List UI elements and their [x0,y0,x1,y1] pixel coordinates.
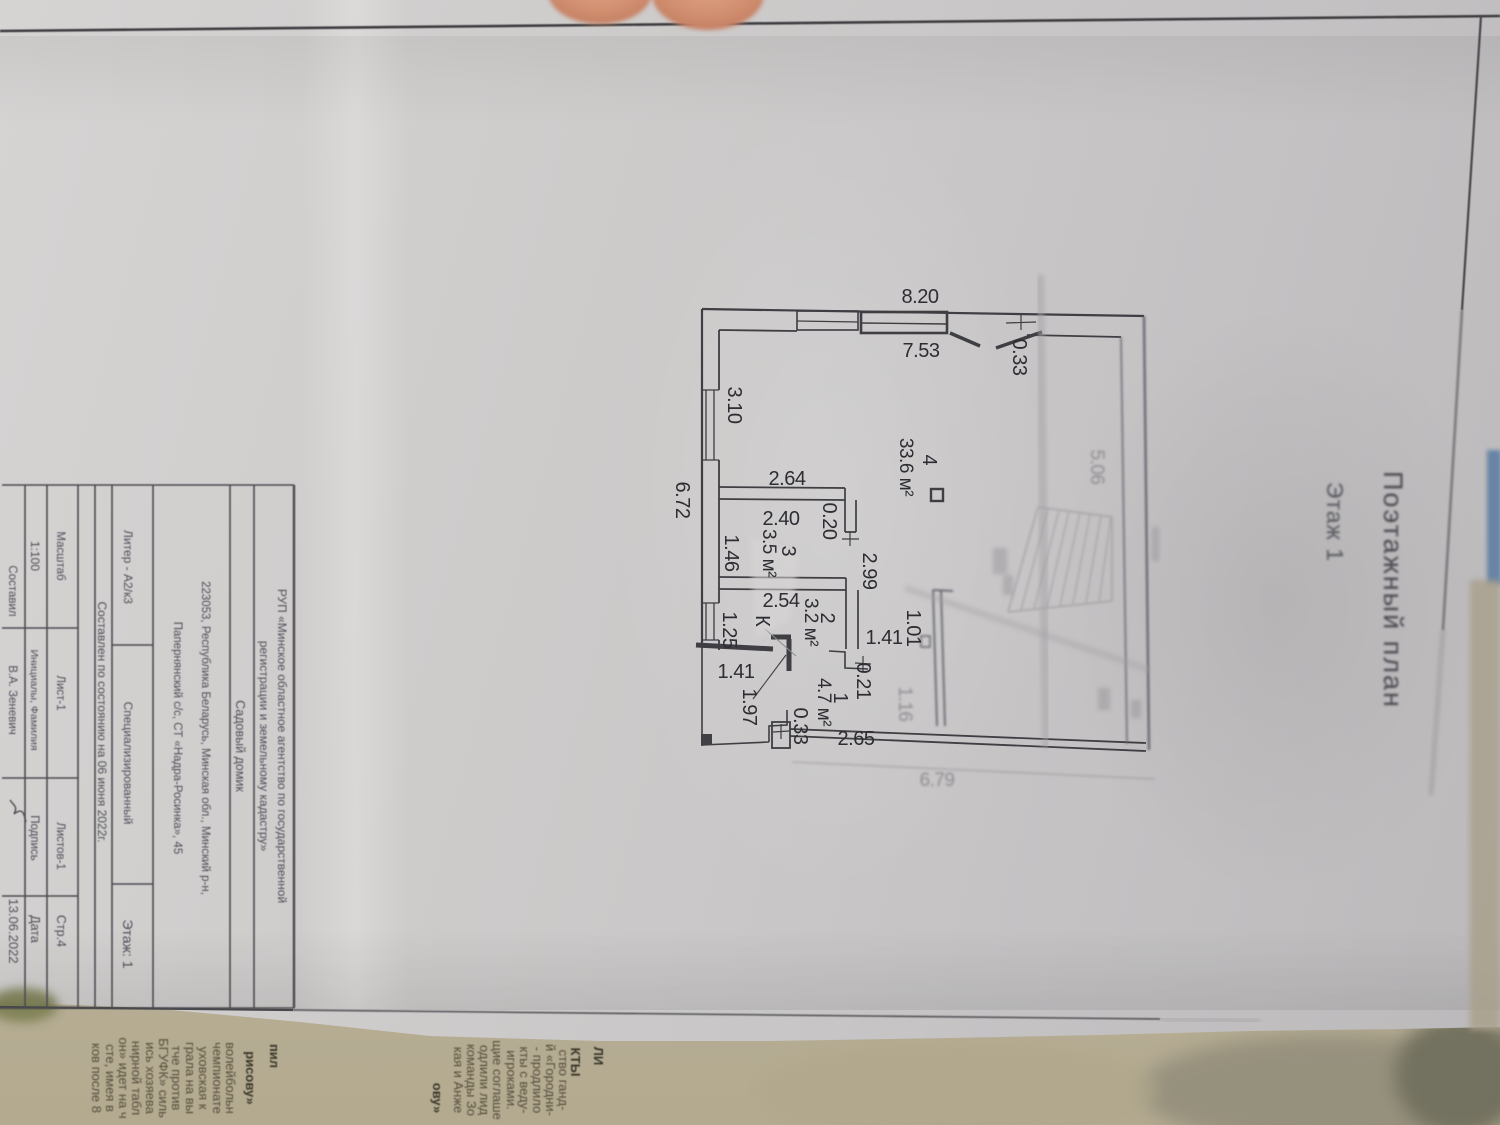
document-drawing-layer: 8.20 7.53 2.64 2.40 2.54 1.41 1.41 2.65 … [0,0,1500,1125]
blue-object-edge [1487,450,1500,585]
background-objects [1470,450,1500,1030]
title-block-text: РУП «Минское областное агентство по госу… [6,530,289,969]
dim-label: 3.10 [723,387,745,424]
dim-label: 1.41 [866,627,903,649]
fingertip-left [548,0,652,24]
signature-header: Подпись [28,815,40,861]
floorplan-right-blurred [921,316,1149,750]
dim-label: 0.20 [818,503,840,540]
dim-label: 1.01 [902,610,924,647]
as-of-date-row: Составлен по состоянию на 06 июня 2022г. [95,601,109,842]
chimney-wall [933,590,953,726]
dim-label-faint: 6.79 [920,770,955,791]
porch-post [701,734,712,745]
address-line2: Папернянский с/с, СТ «Надра-Росинка», 45 [171,622,183,854]
floor-cell: Этаж: 1 [120,919,136,968]
dim-label: 2.99 [858,553,880,590]
newspaper-headline: пил [267,1044,282,1068]
object-type: Садовый домик [233,700,247,792]
thick-wall-b [771,637,791,671]
newspaper-line: ись хозяева [143,1042,158,1115]
scale-label: Масштаб [54,531,66,581]
dim-label: 7.53 [903,340,940,362]
newspaper-line: грала на вы [183,1042,198,1114]
page-frame [0,16,1500,1021]
room-area: 33.6 м² [895,438,916,496]
window-1 [797,311,858,330]
window-left-b [702,603,719,640]
bleedthrough-bands [750,275,1159,779]
dim-label: 2.64 [769,468,806,490]
page-subtitle: Этаж 1 [1322,482,1348,562]
name-header: Инициалы, Фамилия [28,649,40,750]
photo-of-floorplan-document: 8.20 7.53 2.64 2.40 2.54 1.41 1.41 2.65 … [0,0,1500,1125]
compiled-by-label: Составил [6,565,18,616]
window-left-a [702,390,719,460]
room-number: 4 [918,454,940,465]
dim-label: 1.25 [718,612,740,649]
org-name-line1: РУП «Минское областное агентство по госу… [275,589,289,903]
terrace-line [792,762,1155,779]
newspaper-headline: ЛИ [591,1047,606,1065]
dim-label: 1.41 [718,661,755,683]
dim-tick [842,532,859,546]
newspaper-line: кая и Анже [451,1047,466,1114]
newspaper-line: игроками. [504,1050,519,1109]
room-area: 3.5 м² [758,529,779,577]
compiler-name: В.А. Зеневич [6,665,18,735]
dim-label-faint: 5.06 [1086,450,1107,485]
specialized-cell: Специализированный [121,702,135,825]
sheets-label: Листов-1 [54,822,66,870]
dim-label: 2.65 [838,728,875,750]
newspaper-text-mid: ЛИ КТЫ ову» ство ганд- й «Городни- - про… [430,1040,606,1120]
dim-label: 0.33 [1008,339,1030,376]
newspaper-headline: ову» [430,1083,445,1113]
dim-tick [1006,315,1036,330]
dim-label: 0.33 [789,708,811,745]
boiler-symbol: К [751,615,773,627]
dim-label: 2.40 [763,508,800,530]
newspaper-line: сте, имея в [103,1044,118,1112]
sheet-header: Поэтажный план Этаж 1 [1322,471,1408,709]
dim-label: 2.54 [763,590,800,612]
newspaper-line: ков после 8 [89,1043,104,1113]
page-title: Поэтажный план [1378,471,1408,709]
date-header: Дата [28,915,42,943]
stove-marker [931,489,943,501]
scale-value: 1:100 [28,541,42,571]
stairs-bleedthrough [1008,507,1112,612]
sheet-label: Лист-1 [54,675,66,710]
address-line1: 223053, Республика Беларусь, Минская обл… [199,581,211,895]
dim-label: 6.72 [671,482,693,519]
page-number: Стр.4 [54,915,68,947]
dim-label: 1.46 [720,535,742,572]
signature [10,800,26,822]
dim-label: 0.21 [852,663,874,700]
newspaper-line: чемпионате [210,1042,225,1114]
compiled-date: 13.06.2022 [6,898,21,963]
dim-label-faint: 1.16 [894,687,915,722]
newspaper-text-left: пил рисову» волейбольн чемпионате уховск… [89,1037,282,1118]
tan-object-edge [1470,580,1500,1030]
title-block-grid [0,485,294,1008]
dim-label: 8.20 [902,286,939,308]
newspaper-headline: рисову» [243,1051,258,1105]
door-leaf-left [950,333,980,346]
room-area: 3.2 м² [800,598,821,646]
org-name-line2: регистрации и земельному кадастру» [257,641,271,852]
dim-label: 1.97 [738,689,760,726]
liter-cell: Литер - А2/к3 [121,530,135,604]
room-number: 3 [777,545,799,556]
room-area: 4.7 м² [813,678,834,726]
